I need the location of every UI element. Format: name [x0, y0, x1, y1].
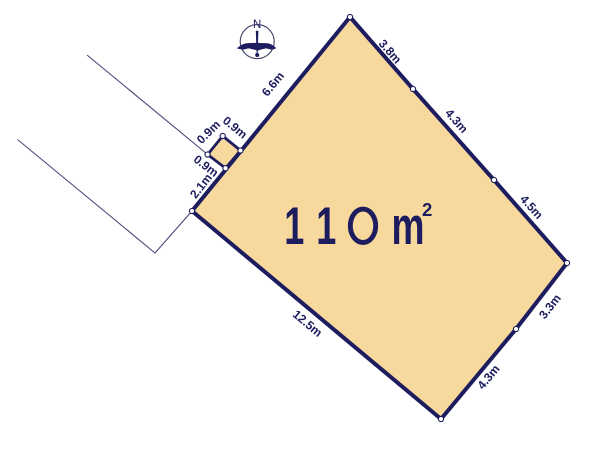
svg-text:1: 1 [316, 196, 336, 256]
svg-text:m: m [392, 196, 425, 255]
svg-text:2: 2 [422, 199, 432, 220]
svg-text:1: 1 [284, 196, 304, 256]
svg-text:N: N [253, 19, 261, 31]
